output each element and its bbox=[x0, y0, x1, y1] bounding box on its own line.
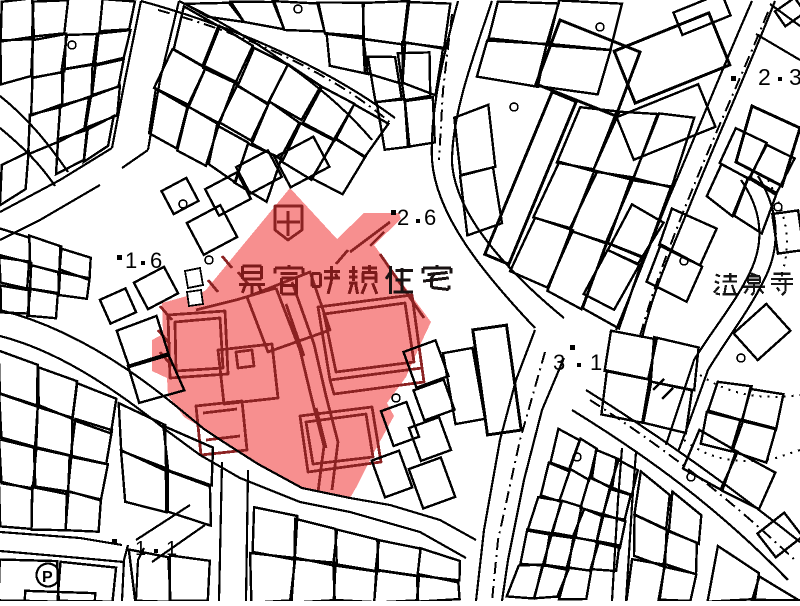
svg-text:P: P bbox=[42, 569, 53, 586]
svg-text:1: 1 bbox=[166, 538, 177, 560]
svg-text:2: 2 bbox=[758, 64, 771, 90]
svg-text:3: 3 bbox=[789, 64, 800, 90]
svg-text:2: 2 bbox=[397, 205, 409, 230]
svg-text:6: 6 bbox=[424, 205, 436, 230]
svg-text:1: 1 bbox=[590, 350, 602, 375]
svg-text:3: 3 bbox=[553, 350, 565, 375]
svg-text:6: 6 bbox=[150, 248, 162, 273]
svg-text:1: 1 bbox=[135, 538, 146, 560]
svg-text:1: 1 bbox=[125, 248, 137, 273]
